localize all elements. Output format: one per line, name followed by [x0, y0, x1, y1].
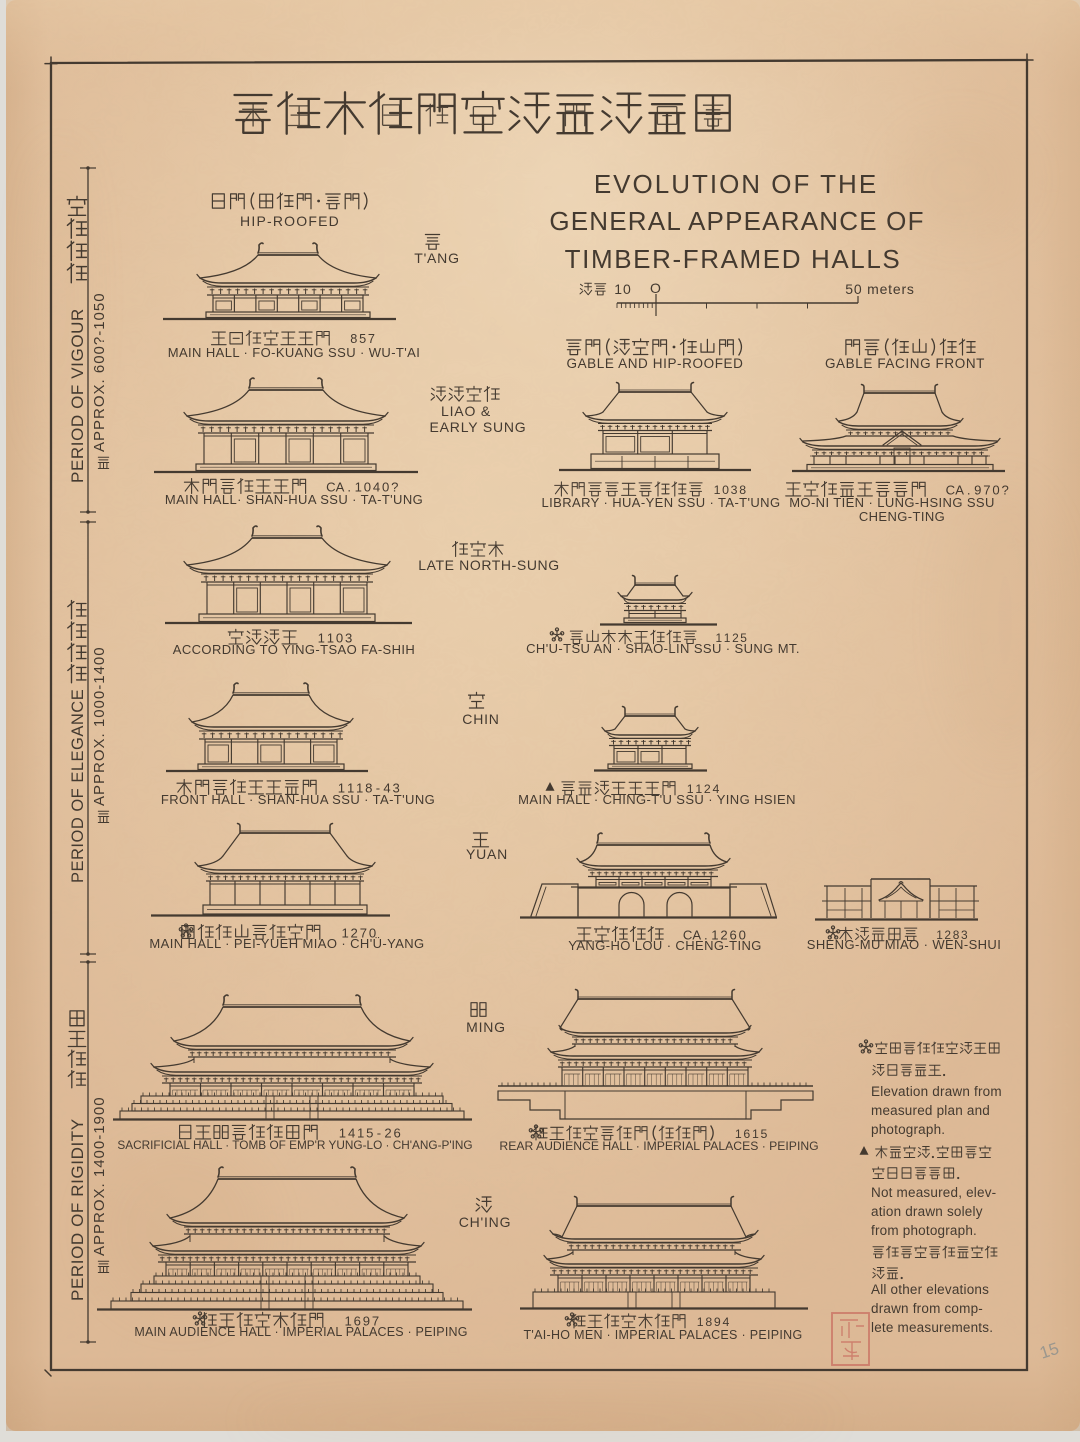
svg-text:YANG-HO LOU · CHENG-TING: YANG-HO LOU · CHENG-TING: [568, 938, 762, 953]
svg-text:PERIOD OF VIGOUR: PERIOD OF VIGOUR: [68, 308, 87, 483]
svg-text:ation drawn solely: ation drawn solely: [871, 1204, 983, 1219]
svg-text:APPROX. 1000-1400: APPROX. 1000-1400: [91, 646, 108, 806]
svg-text:O: O: [650, 280, 662, 296]
svg-text:EARLY SUNG: EARLY SUNG: [430, 419, 527, 435]
svg-text:GABLE FACING FRONT: GABLE FACING FRONT: [825, 356, 985, 371]
svg-text:SACRIFICIAL HALL · TOMB OF EMP: SACRIFICIAL HALL · TOMB OF EMP'R YUNG-LO…: [117, 1138, 472, 1152]
svg-text:PERIOD OF RIGIDITY: PERIOD OF RIGIDITY: [68, 1118, 87, 1301]
svg-text:T'ANG: T'ANG: [414, 250, 460, 266]
svg-text:MING: MING: [466, 1019, 506, 1035]
svg-text:10: 10: [614, 281, 632, 297]
svg-text:LIBRARY · HUA-YEN SSU · TA-T'U: LIBRARY · HUA-YEN SSU · TA-T'UNG: [542, 495, 781, 510]
svg-text:MAIN AUDIENCE HALL · IMPERIAL: MAIN AUDIENCE HALL · IMPERIAL PALACES · …: [134, 1325, 467, 1339]
svg-text:MAIN HALL · CHING-T'U SSU ·: MAIN HALL · CHING-T'U SSU · YING HSIEN: [518, 792, 796, 807]
svg-text:?: ?: [1002, 482, 1009, 497]
svg-text:LIAO &: LIAO &: [441, 403, 491, 419]
svg-text:CHENG-TING: CHENG-TING: [859, 509, 945, 524]
svg-text:MAIN HALL· SHAN-HUA SSU · T: MAIN HALL· SHAN-HUA SSU · TA-T'UNG: [165, 492, 423, 507]
svg-text:EVOLUTION OF THE: EVOLUTION OF THE: [594, 169, 878, 199]
svg-text:MO-NI TIEN · LUNG-HSING SSU: MO-NI TIEN · LUNG-HSING SSU: [789, 495, 995, 510]
svg-text:REAR AUDIENCE HALL · IMPERIAL: REAR AUDIENCE HALL · IMPERIAL PALACES · …: [499, 1139, 818, 1153]
svg-text:photograph.: photograph.: [871, 1122, 945, 1137]
svg-text:Not measured, elev-: Not measured, elev-: [871, 1185, 996, 1200]
svg-text:measured plan and: measured plan and: [871, 1103, 990, 1118]
svg-text:All other elevations: All other elevations: [871, 1282, 989, 1297]
svg-text:YUAN: YUAN: [466, 846, 508, 862]
svg-text:HIP-ROOFED: HIP-ROOFED: [240, 213, 340, 229]
svg-text:SHENG-MU MIAO · WEN-SHUI: SHENG-MU MIAO · WEN-SHUI: [807, 937, 1001, 952]
svg-text:FRONT HALL · SHAN-HUA SSU ·: FRONT HALL · SHAN-HUA SSU · TA-T'UNG: [161, 792, 435, 807]
svg-text:CHIN: CHIN: [462, 711, 499, 727]
svg-text:7: 7: [368, 332, 375, 346]
svg-text:APPROX. 600?-1050: APPROX. 600?-1050: [91, 292, 108, 452]
svg-text:lete measurements.: lete measurements.: [871, 1320, 993, 1335]
svg-text:8: 8: [705, 1315, 712, 1329]
svg-text:MAIN HALL · FO-KUANG SSU · WU-: MAIN HALL · FO-KUANG SSU · WU-T'AI: [168, 345, 421, 360]
svg-text:GENERAL APPEARANCE OF: GENERAL APPEARANCE OF: [549, 206, 924, 236]
svg-text:TIMBER-FRAMED HALLS: TIMBER-FRAMED HALLS: [565, 244, 902, 274]
svg-text:T'AI-HO MEN · IMPERIAL PALACES: T'AI-HO MEN · IMPERIAL PALACES · PEIPING: [523, 1328, 802, 1342]
svg-text:8: 8: [350, 332, 357, 346]
svg-text:PERIOD OF ELEGANCE: PERIOD OF ELEGANCE: [69, 689, 87, 883]
svg-text:9: 9: [714, 1315, 721, 1329]
svg-text:APPROX. 1400-1900: APPROX. 1400-1900: [91, 1096, 108, 1256]
svg-text:1: 1: [697, 1315, 704, 1329]
svg-text:MAIN HALL · PEI-YUEH MIAO ·: MAIN HALL · PEI-YUEH MIAO · CH'Ü-YANG: [149, 936, 424, 951]
svg-text:Elevation drawn from: Elevation drawn from: [871, 1084, 1002, 1099]
svg-text:CH'ING: CH'ING: [459, 1214, 512, 1230]
svg-text:4: 4: [722, 1315, 729, 1329]
svg-text:ACCORDING TO YING-TSAO FA-SHI: ACCORDING TO YING-TSAO FA-SHIH: [173, 642, 415, 657]
svg-text:LATE NORTH-SUNG: LATE NORTH-SUNG: [418, 557, 560, 573]
svg-text:5: 5: [359, 332, 366, 346]
svg-text:CH'U-TSU AN · SHAO-LIN SSU ·: CH'U-TSU AN · SHAO-LIN SSU · SUNG MT.: [526, 641, 800, 656]
svg-text:from photograph.: from photograph.: [871, 1223, 977, 1238]
svg-text:GABLE AND HIP-ROOFED: GABLE AND HIP-ROOFED: [566, 356, 743, 371]
svg-text:50 meters: 50 meters: [845, 281, 914, 297]
svg-text:drawn from comp-: drawn from comp-: [871, 1301, 983, 1316]
